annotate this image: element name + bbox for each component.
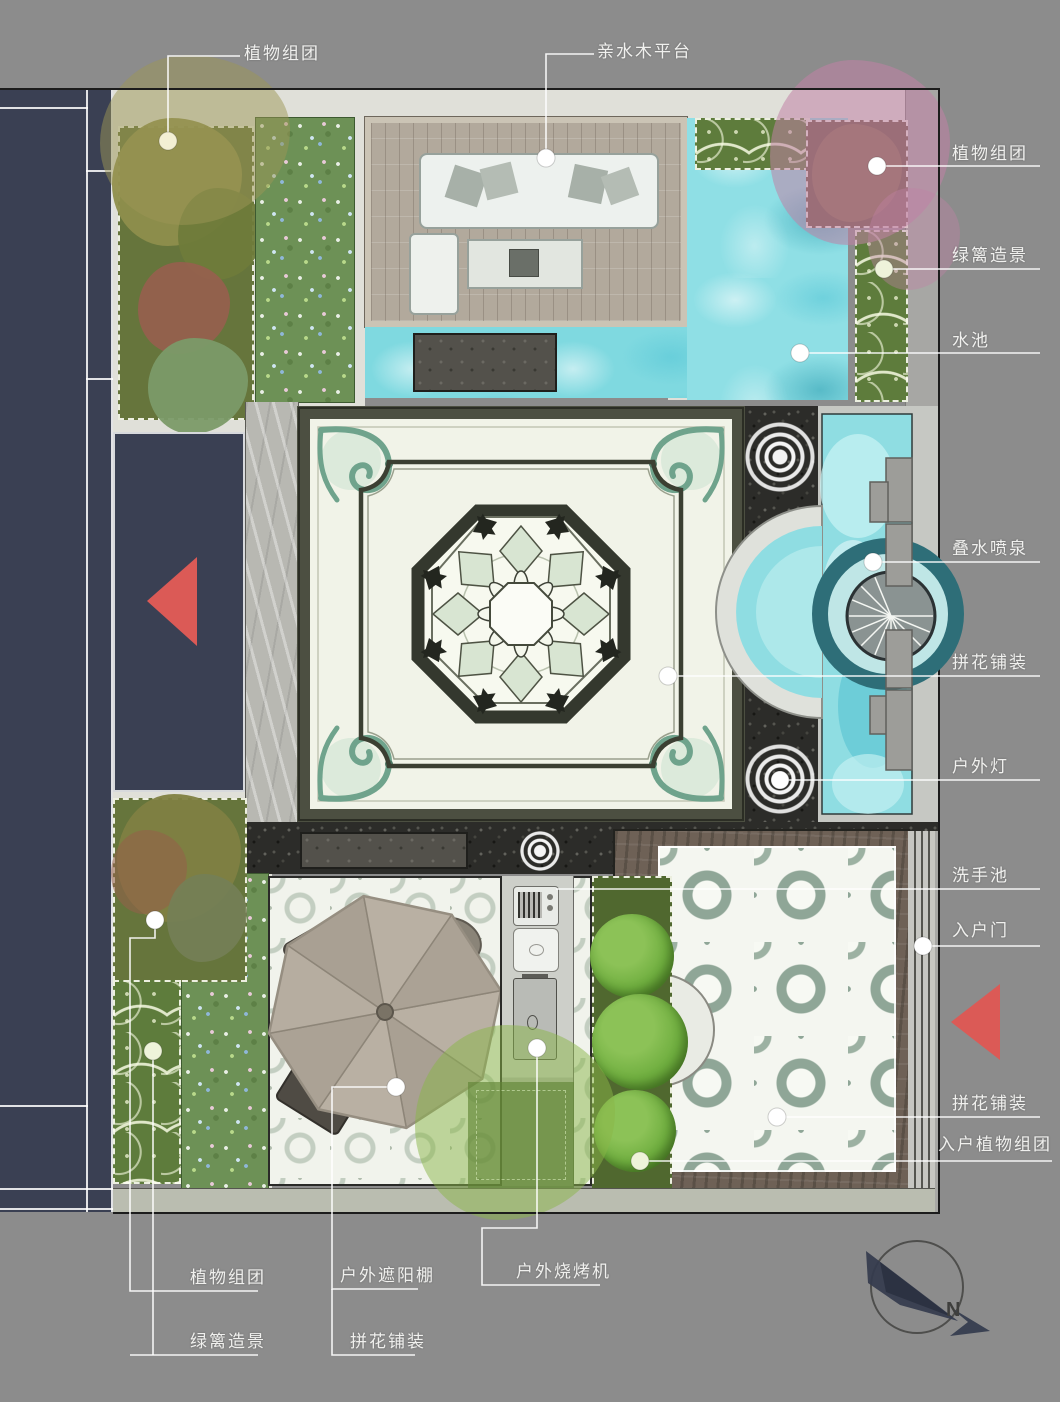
plan-label-hedge-bottom: 绿篱造景 xyxy=(190,1332,266,1352)
deck-sofa xyxy=(419,153,659,229)
building-wall-line xyxy=(86,90,88,1212)
plan-canvas: 植物组团 亲水木平台 植物组团 绿篱造景 水池 叠水喷泉 拼花铺装 户外灯 洗手… xyxy=(0,0,1060,1402)
plan-border-bottom xyxy=(113,1212,940,1214)
door-line xyxy=(914,831,916,1190)
bush xyxy=(592,994,688,1090)
plan-label-bbq: 户外烧烤机 xyxy=(516,1262,611,1282)
plan-label-waterside-deck: 亲水木平台 xyxy=(597,42,692,62)
bbq-grill xyxy=(513,886,559,926)
grill-knob xyxy=(547,894,553,900)
plan-label-entry-plant-group: 入户植物组团 xyxy=(938,1135,1052,1155)
plan-label-sunshade: 户外遮阳棚 xyxy=(340,1266,435,1286)
stone-bench xyxy=(300,832,468,869)
plan-border-right xyxy=(938,88,940,1214)
stone-slab xyxy=(413,333,557,392)
tree-canopy-pink xyxy=(868,188,960,290)
plan-label-mosaic-paving-entry: 拼花铺装 xyxy=(952,1094,1028,1114)
outdoor-light-bottom xyxy=(744,743,816,815)
grill-knob xyxy=(547,905,553,911)
plant-bed-bottom-left xyxy=(113,798,247,982)
hedge-bottom-left xyxy=(113,980,181,1184)
plan-label-mosaic-paving-center: 拼花铺装 xyxy=(952,653,1028,673)
building-step-line xyxy=(0,1208,113,1210)
plan-label-pool: 水池 xyxy=(952,331,990,351)
building-mid-block xyxy=(113,432,245,792)
compass-north-label: N xyxy=(946,1300,960,1320)
building-step-line xyxy=(0,1105,88,1107)
tea-tray xyxy=(509,249,539,277)
compass-icon xyxy=(866,1241,990,1336)
plan-label-plant-group-right: 植物组团 xyxy=(952,144,1028,164)
building-step-line xyxy=(0,1188,113,1190)
plan-border-top xyxy=(0,88,940,90)
plaza-medallion xyxy=(297,406,745,822)
fountain-water xyxy=(818,406,938,822)
door-line xyxy=(921,831,923,1190)
central-plaza xyxy=(297,406,745,822)
deck-lounge-chair xyxy=(409,233,459,315)
bush xyxy=(590,914,674,998)
plan-label-wash-basin: 洗手池 xyxy=(952,866,1009,886)
outdoor-light-top xyxy=(744,421,816,493)
plan-label-outdoor-light: 户外灯 xyxy=(952,757,1009,777)
outdoor-light-small xyxy=(518,829,563,874)
gravel-strip-bottom-right xyxy=(618,822,938,831)
plan-label-cascade-fountain: 叠水喷泉 xyxy=(952,539,1028,559)
sink-drain xyxy=(529,944,544,956)
door-line xyxy=(928,831,930,1190)
plan-label-entry-door: 入户门 xyxy=(952,921,1009,941)
tree-canopy xyxy=(167,874,247,962)
wood-deck xyxy=(365,117,687,327)
sofa-pillow xyxy=(480,162,519,201)
entry-arrow-right-icon xyxy=(951,984,1000,1060)
plan-label-plant-group-top: 植物组团 xyxy=(244,44,320,64)
stone-walkway xyxy=(245,402,299,832)
grill-grate xyxy=(518,892,542,918)
bbq-sink xyxy=(513,928,559,972)
building-left-strip xyxy=(0,90,113,1212)
plan-label-hedge-right: 绿篱造景 xyxy=(952,246,1028,266)
deck-table xyxy=(467,239,583,289)
building-step-line xyxy=(86,378,113,380)
plan-label-plant-group-bottom: 植物组团 xyxy=(190,1268,266,1288)
plan-label-mosaic-paving-patio: 拼花铺装 xyxy=(350,1332,426,1352)
fountain-zone xyxy=(818,406,938,822)
building-step-line xyxy=(0,107,88,109)
tree-canopy xyxy=(148,338,248,434)
sofa-pillow xyxy=(568,164,608,204)
cart-handle xyxy=(522,974,548,978)
entry-door-strip xyxy=(908,831,935,1190)
